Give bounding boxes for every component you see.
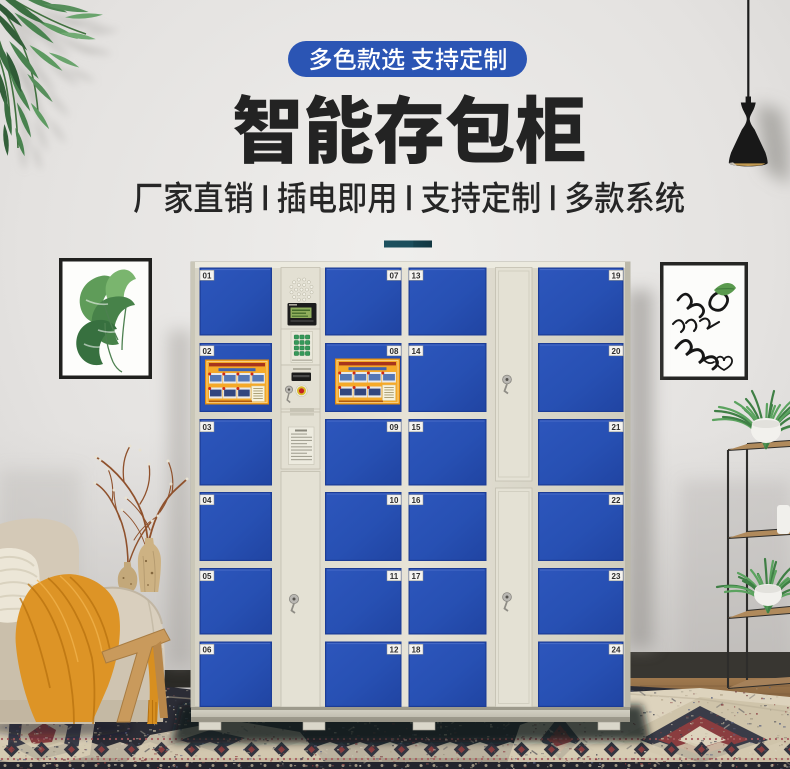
svg-text:07: 07 — [390, 272, 399, 281]
svg-text:12: 12 — [390, 646, 399, 655]
svg-text:02: 02 — [203, 347, 212, 356]
svg-text:15: 15 — [412, 423, 421, 432]
svg-text:16: 16 — [412, 496, 421, 505]
svg-text:18: 18 — [412, 646, 421, 655]
svg-text:01: 01 — [203, 272, 212, 281]
svg-text:09: 09 — [390, 423, 399, 432]
svg-text:17: 17 — [412, 572, 421, 581]
svg-text:19: 19 — [612, 272, 621, 281]
svg-text:04: 04 — [203, 496, 212, 505]
svg-text:06: 06 — [203, 646, 212, 655]
svg-text:24: 24 — [612, 646, 621, 655]
svg-text:21: 21 — [612, 423, 621, 432]
svg-text:05: 05 — [203, 572, 212, 581]
svg-text:03: 03 — [203, 423, 212, 432]
svg-text:22: 22 — [612, 496, 621, 505]
svg-text:13: 13 — [412, 272, 421, 281]
svg-text:10: 10 — [390, 496, 399, 505]
svg-text:20: 20 — [612, 347, 621, 356]
svg-text:23: 23 — [612, 572, 621, 581]
svg-text:11: 11 — [390, 572, 399, 581]
svg-text:08: 08 — [390, 347, 399, 356]
svg-text:14: 14 — [412, 347, 421, 356]
